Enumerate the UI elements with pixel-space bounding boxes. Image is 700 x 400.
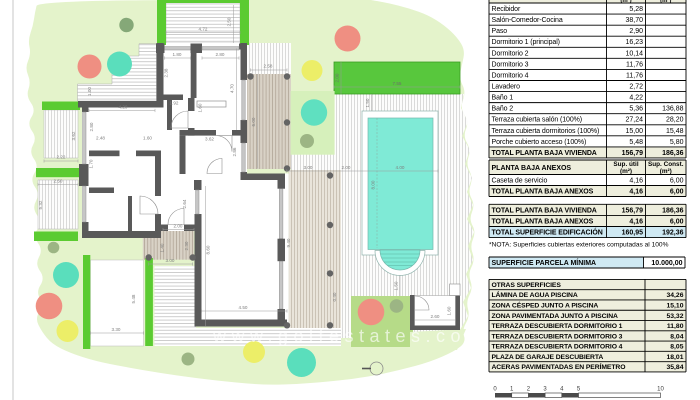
svg-text:TERRAZA DESCUBIERTA DORMITORIO: TERRAZA DESCUBIERTA DORMITORIO 1	[492, 323, 623, 330]
svg-text:Baño 1: Baño 1	[492, 95, 514, 102]
svg-text:2.50: 2.50	[227, 17, 232, 26]
svg-text:3.62: 3.62	[205, 137, 214, 142]
svg-text:7.55: 7.55	[393, 81, 402, 86]
svg-text:53,32: 53,32	[666, 313, 683, 320]
svg-text:10,14: 10,14	[625, 50, 643, 57]
svg-text:OTRAS SUPERFICIES: OTRAS SUPERFICIES	[492, 282, 562, 289]
svg-text:2.00: 2.00	[174, 224, 183, 229]
svg-text:6.00: 6.00	[251, 117, 256, 126]
svg-text:5,28: 5,28	[629, 6, 643, 13]
svg-text:1.60: 1.60	[198, 103, 203, 112]
svg-text:Porche cubierto acceso (100%): Porche cubierto acceso (100%)	[492, 139, 587, 146]
svg-text:9.40: 9.40	[286, 238, 291, 247]
svg-text:Caseta de servicio: Caseta de servicio	[492, 178, 548, 185]
svg-text:2.50: 2.50	[54, 179, 63, 184]
svg-text:2.00: 2.00	[342, 165, 351, 170]
svg-text:11,80: 11,80	[667, 323, 684, 330]
svg-text:8,05: 8,05	[670, 344, 683, 351]
svg-text:4,16: 4,16	[629, 218, 643, 225]
svg-text:1.50: 1.50	[365, 98, 370, 107]
svg-text:3.00: 3.00	[304, 165, 313, 170]
svg-text:2.48: 2.48	[96, 136, 105, 141]
svg-text:6,00: 6,00	[670, 218, 684, 225]
svg-text:15,48: 15,48	[666, 128, 684, 135]
svg-text:TOTAL PLANTA BAJA VIVIENDA: TOTAL PLANTA BAJA VIVIENDA	[492, 207, 597, 214]
svg-text:Dormitorio 2: Dormitorio 2	[492, 50, 529, 57]
svg-text:(m²): (m²)	[660, 168, 672, 175]
svg-text:2.64: 2.64	[182, 199, 187, 208]
svg-text:1.50: 1.50	[394, 281, 399, 290]
svg-text:38,70: 38,70	[625, 17, 643, 24]
svg-text:1.00: 1.00	[87, 87, 92, 96]
svg-text:8,04: 8,04	[670, 333, 683, 340]
svg-text:2.22: 2.22	[57, 155, 66, 160]
svg-text:TERRAZA DESCUBIERTA DORMITORIO: TERRAZA DESCUBIERTA DORMITORIO 3	[492, 333, 623, 340]
svg-text:4,16: 4,16	[629, 189, 643, 196]
svg-text:186,36: 186,36	[662, 150, 684, 157]
svg-text:3.00: 3.00	[166, 258, 175, 263]
svg-text:2.80: 2.80	[216, 52, 225, 57]
svg-text:Terraza cubierta salón (100%): Terraza cubierta salón (100%)	[492, 117, 582, 124]
svg-text:*NOTA: Superficies cubiertas e: *NOTA: Superficies cubiertas exteriores …	[489, 242, 669, 249]
svg-text:Paso: Paso	[492, 28, 508, 35]
svg-text:TOTAL PLANTA BAJA VIVIENDA: TOTAL PLANTA BAJA VIVIENDA	[492, 150, 597, 157]
svg-text:186,36: 186,36	[662, 207, 684, 214]
svg-text:1.92: 1.92	[170, 101, 179, 106]
svg-text:0.40: 0.40	[332, 292, 337, 301]
svg-text:11,76: 11,76	[626, 72, 643, 79]
svg-text:Dormitorio 4: Dormitorio 4	[492, 72, 529, 79]
svg-text:4.70: 4.70	[230, 84, 235, 93]
svg-text:10.000,00: 10.000,00	[651, 260, 682, 267]
svg-text:4.72: 4.72	[199, 27, 208, 32]
svg-text:2.00: 2.00	[335, 73, 340, 82]
svg-text:2,90: 2,90	[629, 28, 643, 35]
svg-text:Salón-Comedor-Cocina: Salón-Comedor-Cocina	[492, 17, 563, 24]
svg-text:4.50: 4.50	[239, 305, 248, 310]
svg-text:TOTAL PLANTA BAJA ANEXOS: TOTAL PLANTA BAJA ANEXOS	[492, 218, 594, 225]
svg-text:4.00: 4.00	[396, 165, 405, 170]
svg-text:2.38: 2.38	[164, 68, 169, 77]
svg-text:2.58: 2.58	[264, 64, 273, 69]
svg-text:ZONA CÉSPED JUNTO A PISCINA: ZONA CÉSPED JUNTO A PISCINA	[492, 301, 599, 310]
svg-text:18,01: 18,01	[666, 354, 683, 361]
svg-text:15,10: 15,10	[666, 303, 683, 310]
svg-text:TOTAL SUPERFICIE EDIFICACIÓN: TOTAL SUPERFICIE EDIFICACIÓN	[492, 228, 603, 237]
svg-text:5,36: 5,36	[629, 106, 643, 113]
svg-text:1.60: 1.60	[143, 136, 152, 141]
svg-text:1.70: 1.70	[89, 159, 94, 168]
svg-text:8.60: 8.60	[206, 245, 211, 254]
svg-text:2.80: 2.80	[89, 122, 94, 131]
svg-text:PLANTA BAJA ANEXOS: PLANTA BAJA ANEXOS	[492, 165, 572, 172]
svg-text:ACERAS PAVIMENTADAS EN PERÍMET: ACERAS PAVIMENTADAS EN PERÍMETRO	[492, 362, 626, 371]
svg-text:(m²): (m²)	[660, 0, 671, 4]
svg-text:5,80: 5,80	[670, 139, 684, 146]
svg-text:Terraza cubierta dormitorios (: Terraza cubierta dormitorios (100%)	[492, 128, 600, 135]
svg-text:15,00: 15,00	[625, 128, 643, 135]
svg-text:11,76: 11,76	[626, 61, 643, 68]
svg-text:SUPERFICIE PARCELA MÍNIMA: SUPERFICIE PARCELA MÍNIMA	[492, 258, 597, 267]
svg-text:1.40: 1.40	[160, 243, 165, 252]
svg-text:(m²): (m²)	[620, 0, 631, 4]
svg-text:TERRAZA DESCUBIERTA DORMITORIO: TERRAZA DESCUBIERTA DORMITORIO 4	[492, 344, 623, 351]
svg-text:35,84: 35,84	[666, 364, 683, 371]
svg-text:1.60: 1.60	[447, 306, 452, 315]
svg-text:2.30: 2.30	[184, 241, 189, 250]
svg-text:Lavadero: Lavadero	[492, 84, 521, 91]
svg-text:TOTAL PLANTA BAJA ANEXOS: TOTAL PLANTA BAJA ANEXOS	[492, 189, 594, 196]
svg-text:192,36: 192,36	[662, 230, 684, 237]
svg-text:1.80: 1.80	[173, 52, 182, 57]
svg-text:5.48: 5.48	[131, 294, 136, 303]
svg-text:6,00: 6,00	[670, 189, 684, 196]
svg-text:PLAZA DE GARAJE DESCUBIERTA: PLAZA DE GARAJE DESCUBIERTA	[492, 354, 604, 361]
svg-text:156,79: 156,79	[622, 150, 644, 157]
svg-text:160,95: 160,95	[622, 230, 644, 237]
svg-text:156,79: 156,79	[622, 207, 644, 214]
svg-text:4,16: 4,16	[629, 178, 643, 185]
svg-text:27,24: 27,24	[625, 117, 643, 124]
svg-text:10: 10	[657, 387, 664, 393]
svg-text:8.00: 8.00	[371, 180, 376, 189]
svg-text:Baño 2: Baño 2	[492, 106, 514, 113]
svg-text:136,88: 136,88	[662, 106, 684, 113]
svg-text:LÁMINA DE AGUA PISCINA: LÁMINA DE AGUA PISCINA	[492, 290, 578, 299]
svg-text:2.86: 2.86	[232, 147, 237, 156]
svg-text:4.20: 4.20	[119, 105, 128, 110]
svg-text:34,26: 34,26	[666, 292, 683, 299]
svg-text:3.30: 3.30	[112, 327, 121, 332]
svg-text:Recibidor: Recibidor	[492, 6, 521, 13]
svg-text:2.60: 2.60	[431, 314, 440, 319]
svg-text:(m²): (m²)	[620, 168, 632, 175]
svg-text:5.32: 5.32	[38, 200, 43, 209]
svg-text:www.golfestates.com: www.golfestates.com	[212, 326, 487, 346]
svg-text:16,23: 16,23	[625, 39, 643, 46]
svg-text:28,20: 28,20	[666, 117, 684, 124]
svg-text:3.62: 3.62	[71, 131, 76, 140]
svg-text:ZONA PAVIMENTADA JUNTO A PISCI: ZONA PAVIMENTADA JUNTO A PISCINA	[492, 313, 619, 320]
svg-text:Dormitorio 1 (principal): Dormitorio 1 (principal)	[492, 39, 560, 46]
svg-text:6,00: 6,00	[670, 178, 684, 185]
svg-text:4,22: 4,22	[629, 95, 643, 102]
svg-text:2,72: 2,72	[629, 84, 643, 91]
svg-text:Dormitorio 3: Dormitorio 3	[492, 61, 529, 68]
svg-text:5,48: 5,48	[629, 139, 643, 146]
